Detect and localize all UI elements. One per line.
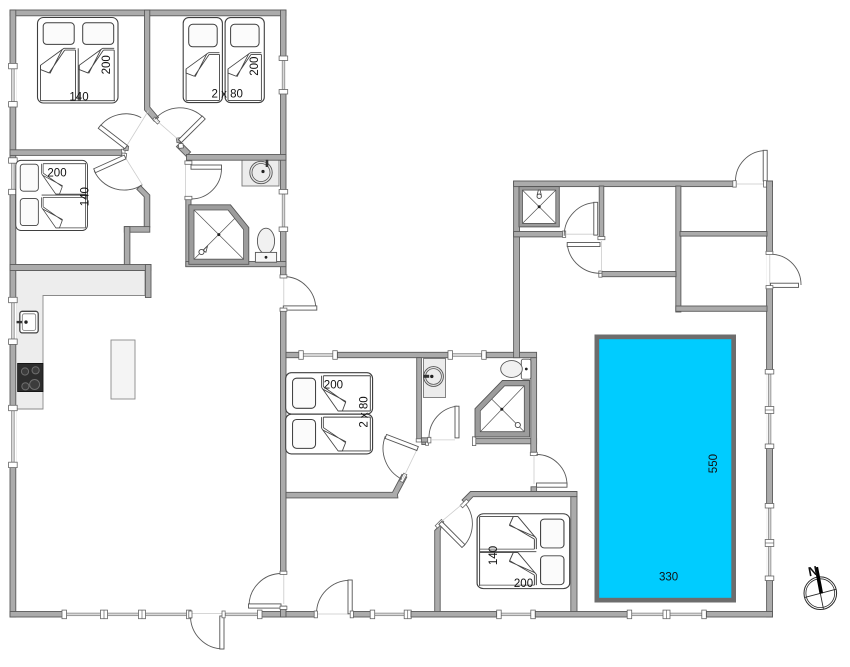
svg-text:550: 550 [708,454,720,473]
svg-text:200: 200 [249,57,261,76]
svg-text:140: 140 [69,92,88,104]
svg-text:330: 330 [659,572,678,584]
svg-text:2 x 80: 2 x 80 [358,396,370,427]
svg-text:140: 140 [488,546,500,565]
svg-text:200: 200 [47,168,66,180]
svg-text:140: 140 [80,187,92,206]
svg-text:200: 200 [101,55,113,74]
svg-text:2 x 80: 2 x 80 [212,89,243,101]
svg-text:200: 200 [324,379,343,391]
svg-text:200: 200 [514,578,533,590]
